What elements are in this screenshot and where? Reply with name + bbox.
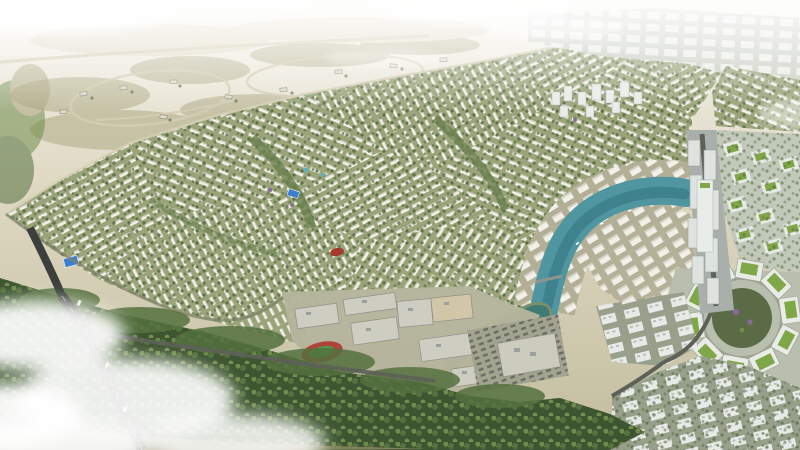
purple-tree <box>268 188 272 192</box>
park-pool <box>304 168 308 172</box>
purple-tree <box>573 118 577 122</box>
scene-canvas <box>0 0 800 450</box>
purple-tree <box>290 203 294 207</box>
horizon-haze <box>0 0 800 112</box>
tall-tower <box>697 180 713 252</box>
aerial-render <box>0 0 800 450</box>
park-pool <box>321 173 324 176</box>
